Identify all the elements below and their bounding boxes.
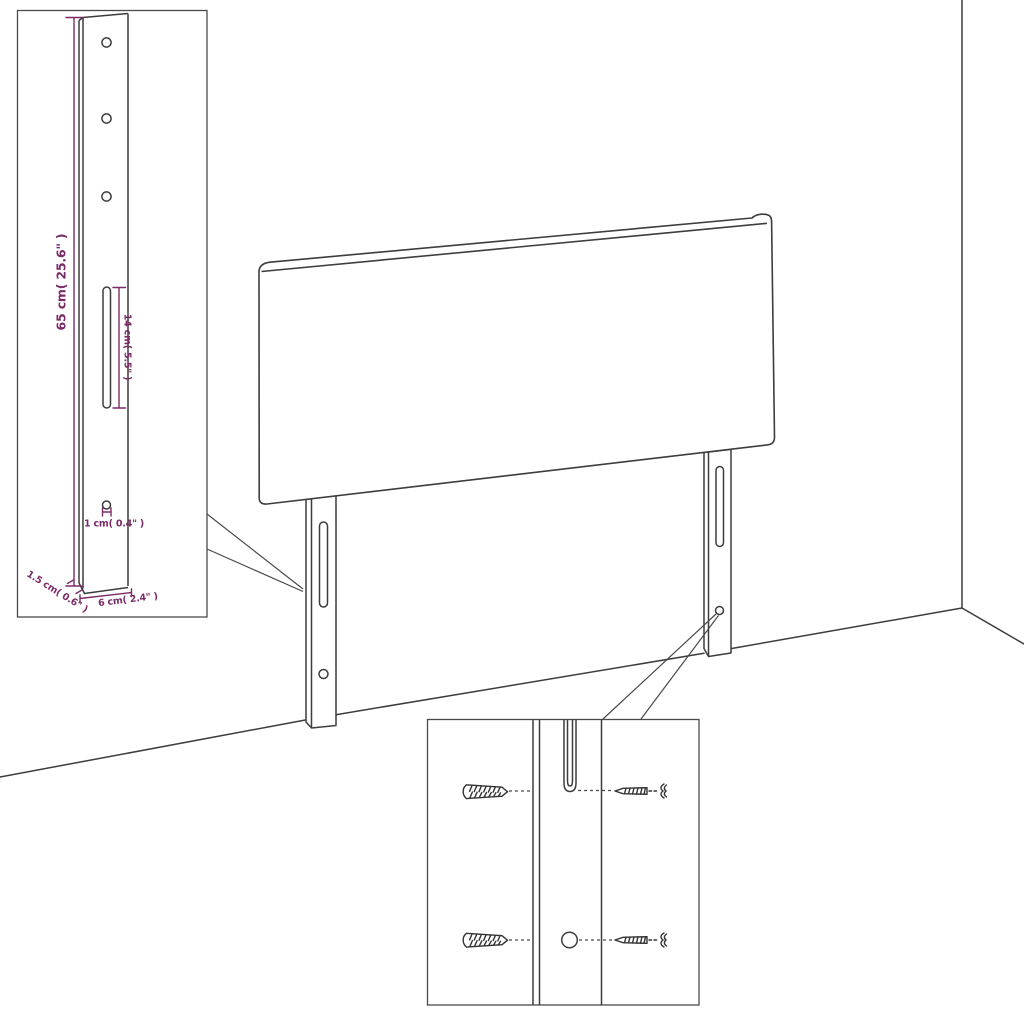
headboard-left-leg <box>306 496 336 728</box>
dimension-label-slot-length: 14 cm( 5.5" ) <box>122 314 133 381</box>
hardware-detail-inset <box>428 720 700 1006</box>
left-leg-slot <box>320 522 328 607</box>
bracket-closeup-drawing <box>79 14 128 594</box>
hardware-inset-leader-lines <box>603 614 719 719</box>
bracket-small-hole <box>103 501 111 509</box>
dimension-lines <box>66 18 132 603</box>
headboard-panel <box>259 214 775 504</box>
bracket-bottom-edge <box>79 583 128 594</box>
bracket-slot <box>103 287 111 408</box>
bracket-hole-middle <box>102 114 111 123</box>
bracket-top-edge <box>79 14 128 21</box>
product-dimension-diagram: 65 cm( 25.6" ) 14 cm( 5.5" ) 1 cm( 0.4" … <box>0 0 1024 1024</box>
diagram-canvas <box>0 0 1024 1024</box>
bracket-hole-top <box>102 38 111 47</box>
bracket-inset-leader-lines <box>207 514 303 592</box>
bracket-hole-lower <box>102 192 111 201</box>
dimension-label-hole-diameter: 1 cm( 0.4" ) <box>84 519 144 530</box>
left-leg-hole <box>319 670 328 679</box>
floor-right-line <box>962 608 1024 644</box>
headboard-right-leg <box>704 449 731 656</box>
dimension-line-depth <box>68 580 83 594</box>
dimension-label-height: 65 cm( 25.6" ) <box>54 234 69 331</box>
right-leg-hole <box>716 607 724 615</box>
right-leg-slot <box>716 467 724 547</box>
panel-outline <box>259 214 775 504</box>
